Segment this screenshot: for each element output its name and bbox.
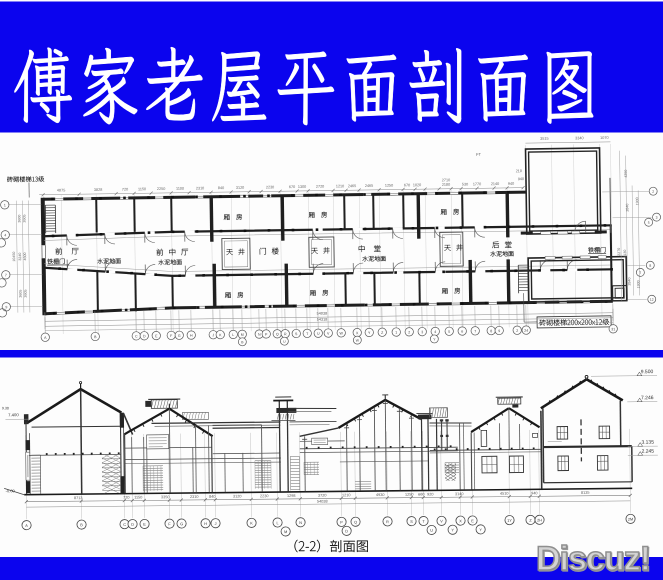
svg-text:670: 670: [404, 183, 410, 187]
svg-text:9: 9: [5, 305, 7, 309]
svg-text:2720: 2720: [316, 185, 325, 189]
svg-text:7: 7: [474, 329, 476, 333]
svg-text:Discuz!: Discuz!: [536, 540, 650, 578]
svg-text:J: J: [215, 522, 217, 526]
svg-text:5: 5: [648, 221, 650, 225]
svg-text:G: G: [180, 522, 183, 526]
svg-text:210: 210: [516, 169, 522, 173]
svg-text:2250: 2250: [157, 187, 166, 191]
svg-text:1: 1: [4, 203, 6, 207]
svg-text:2230: 2230: [260, 494, 268, 498]
svg-text:FT: FT: [476, 152, 482, 157]
svg-text:4250: 4250: [624, 170, 628, 178]
svg-text:G: G: [178, 334, 181, 338]
svg-text:3: 3: [656, 216, 658, 220]
svg-text:U: U: [430, 529, 433, 533]
svg-text:N: N: [299, 521, 302, 525]
svg-text:R: R: [284, 332, 287, 336]
svg-text:2840: 2840: [627, 278, 631, 286]
svg-text:4510: 4510: [500, 492, 508, 496]
svg-text:8713: 8713: [74, 496, 82, 500]
svg-text:3.135: 3.135: [641, 440, 654, 446]
svg-text:2H: 2H: [537, 518, 542, 522]
svg-text:24: 24: [524, 329, 528, 333]
svg-text:3720: 3720: [318, 494, 326, 498]
svg-text:940: 940: [508, 182, 514, 186]
svg-text:3605: 3605: [19, 290, 23, 298]
svg-text:12: 12: [650, 298, 654, 302]
svg-text:R: R: [386, 520, 389, 524]
svg-text:2140: 2140: [491, 182, 500, 186]
svg-text:2310: 2310: [196, 186, 205, 190]
svg-text:5: 5: [448, 330, 450, 334]
svg-text:Q: Q: [354, 520, 357, 524]
svg-text:-0.00: -0.00: [6, 488, 16, 493]
svg-text:9: 9: [498, 329, 500, 333]
svg-text:8: 8: [490, 329, 492, 333]
svg-text:2710: 2710: [442, 178, 451, 182]
svg-text:H: H: [204, 522, 207, 526]
svg-text:D: D: [345, 530, 348, 534]
svg-text:1: 1: [395, 331, 397, 335]
svg-text:1020: 1020: [413, 183, 422, 187]
svg-text:1900: 1900: [635, 197, 639, 205]
svg-text:7.400: 7.400: [8, 412, 19, 417]
svg-text:6: 6: [461, 330, 463, 334]
svg-text:54038: 54038: [317, 500, 328, 504]
svg-text:1300: 1300: [298, 185, 307, 189]
svg-text:U: U: [317, 332, 320, 336]
svg-text:8135: 8135: [581, 491, 589, 495]
svg-text:2: 2: [408, 330, 410, 334]
svg-text:4930: 4930: [376, 493, 384, 497]
svg-text:C: C: [135, 334, 138, 338]
svg-text:2M: 2M: [628, 518, 633, 522]
svg-text:1100: 1100: [176, 187, 184, 191]
svg-text:530: 530: [462, 182, 468, 186]
svg-text:J: J: [212, 333, 214, 337]
svg-text:D: D: [131, 523, 134, 527]
svg-text:54318: 54318: [317, 318, 328, 322]
svg-text:2180: 2180: [442, 183, 451, 187]
svg-text:2230: 2230: [266, 185, 275, 189]
svg-text:1250: 1250: [385, 184, 394, 188]
svg-text:720: 720: [122, 187, 128, 191]
svg-text:1150: 1150: [134, 495, 142, 499]
svg-text:1298: 1298: [287, 494, 295, 498]
svg-text:1770: 1770: [473, 182, 482, 186]
svg-text:3240: 3240: [18, 253, 22, 261]
svg-text:3515: 3515: [540, 137, 549, 141]
svg-text:1070: 1070: [600, 136, 609, 140]
svg-text:4600: 4600: [23, 252, 27, 260]
svg-text:M: M: [284, 530, 287, 534]
svg-text:1250: 1250: [405, 493, 413, 497]
svg-text:3828: 3828: [94, 188, 103, 192]
svg-text:660: 660: [418, 493, 424, 497]
svg-text:4875: 4875: [57, 188, 66, 192]
svg-text:2: 2: [652, 190, 654, 194]
svg-text:4130: 4130: [623, 250, 627, 258]
svg-text:31: 31: [611, 327, 615, 331]
svg-text:2.245: 2.245: [642, 449, 655, 455]
svg-text:1210: 1210: [342, 493, 350, 497]
svg-text:L: L: [232, 333, 234, 337]
svg-text:H: H: [190, 334, 193, 338]
svg-text:3120: 3120: [236, 186, 245, 190]
svg-text:720: 720: [123, 496, 129, 500]
svg-text:2465: 2465: [348, 184, 357, 188]
svg-text:N: N: [258, 333, 261, 337]
svg-text:9.500: 9.500: [641, 369, 654, 375]
svg-text:940: 940: [531, 491, 537, 495]
svg-text:4: 4: [4, 233, 6, 237]
svg-text:54038: 54038: [317, 312, 328, 316]
svg-text:2605: 2605: [22, 214, 26, 222]
svg-text:3140: 3140: [455, 492, 463, 496]
svg-text:3: 3: [421, 330, 423, 334]
svg-text:1150: 1150: [138, 187, 146, 191]
svg-text:D: D: [143, 334, 146, 338]
svg-text:2: 2: [516, 329, 518, 333]
svg-text:2840: 2840: [625, 204, 629, 212]
svg-text:9.30: 9.30: [2, 406, 9, 410]
svg-text:M: M: [241, 333, 244, 337]
svg-text:1Y: 1Y: [507, 519, 512, 523]
svg-text:1900: 1900: [636, 280, 640, 288]
svg-text:2310: 2310: [190, 495, 198, 499]
svg-text:3350: 3350: [161, 495, 169, 499]
svg-text:7: 7: [5, 273, 7, 277]
svg-text:7: 7: [639, 271, 641, 275]
svg-text:Q: Q: [276, 332, 279, 336]
svg-text:2605: 2605: [24, 289, 28, 297]
svg-text:840: 840: [209, 495, 215, 499]
svg-text:2465: 2465: [365, 184, 374, 188]
svg-text:3340: 3340: [575, 136, 584, 140]
svg-text:10450: 10450: [12, 252, 16, 262]
svg-text:3120: 3120: [233, 494, 241, 498]
svg-text:670: 670: [289, 185, 295, 189]
svg-text:3600: 3600: [17, 215, 21, 223]
svg-text:8: 8: [649, 264, 651, 268]
svg-text:L: L: [276, 521, 278, 525]
svg-text:2270: 2270: [617, 248, 621, 256]
svg-text:940: 940: [518, 177, 524, 181]
svg-text:C: C: [123, 523, 126, 527]
svg-text:4: 4: [434, 330, 436, 334]
svg-text:7.246: 7.246: [641, 395, 654, 401]
svg-text:1210: 1210: [336, 184, 345, 188]
svg-text:920: 920: [427, 492, 433, 496]
svg-text:840: 840: [218, 186, 224, 190]
